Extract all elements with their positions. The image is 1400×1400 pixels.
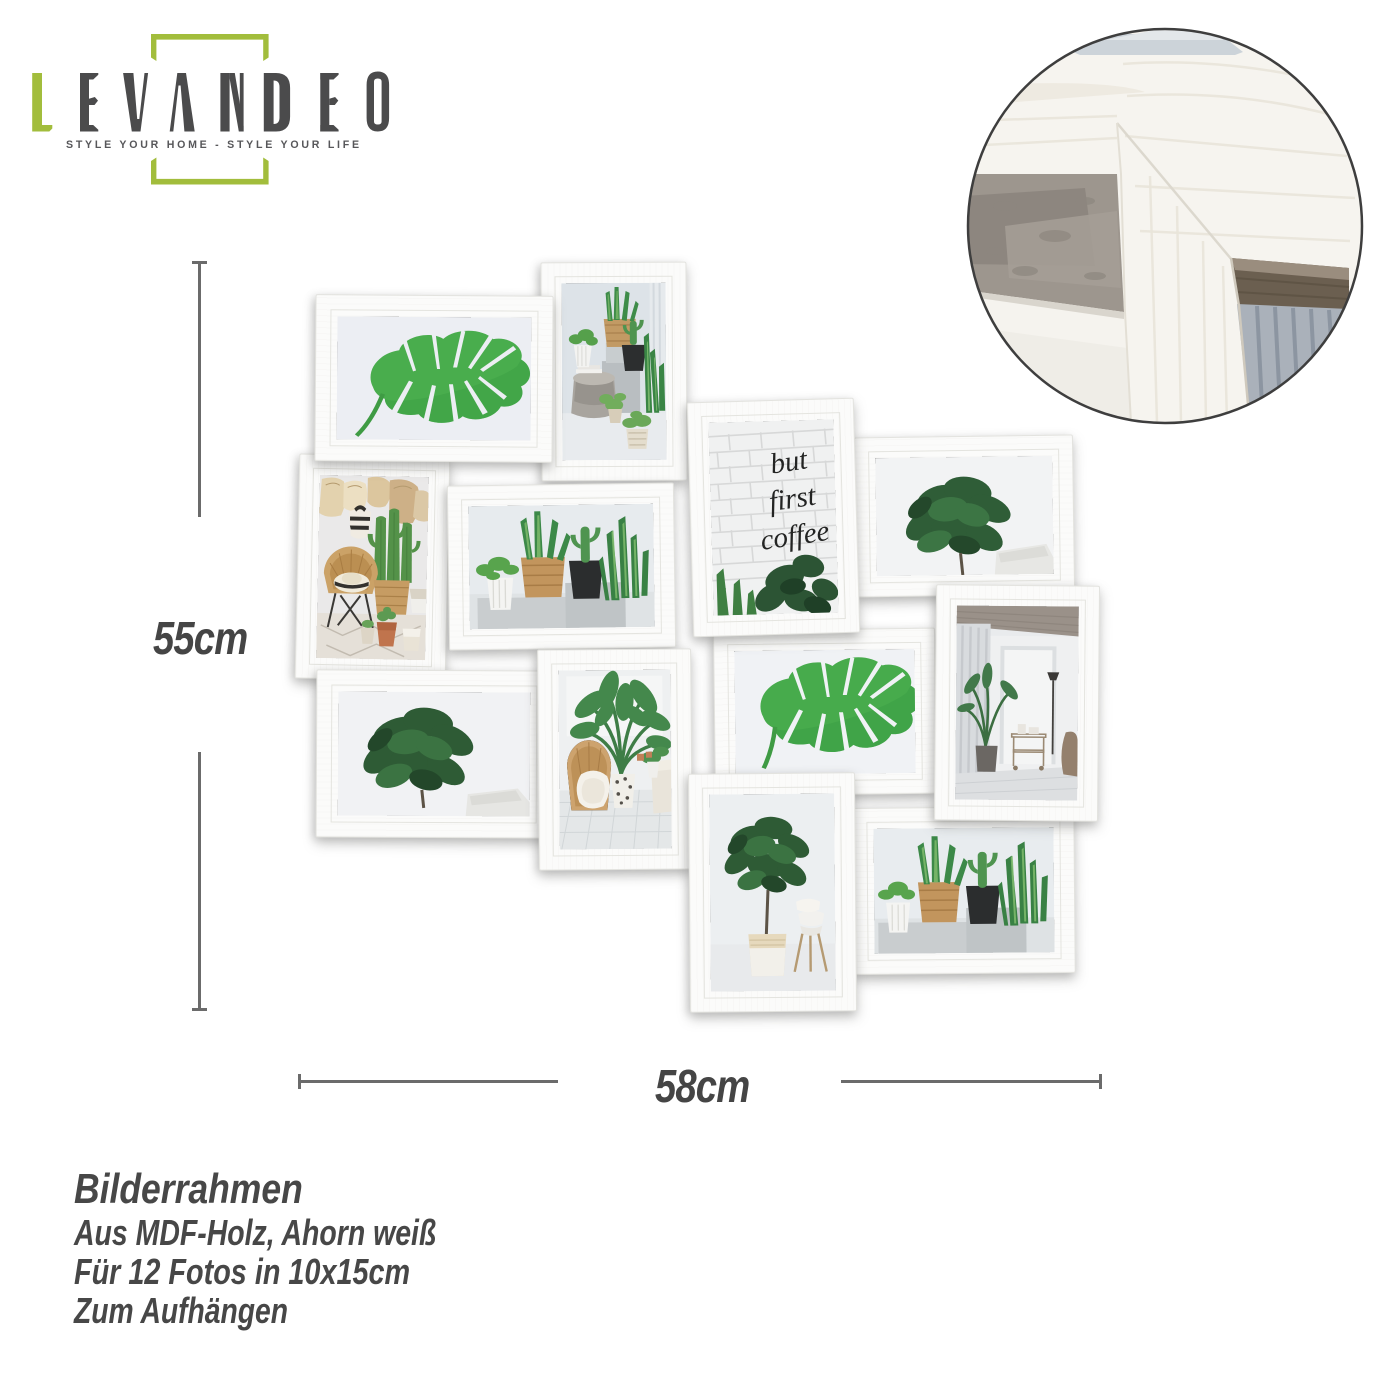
svg-text:but: but: [768, 443, 810, 480]
svg-text:STYLE YOUR HOME - STYLE YOUR L: STYLE YOUR HOME - STYLE YOUR LIFE: [66, 139, 362, 151]
